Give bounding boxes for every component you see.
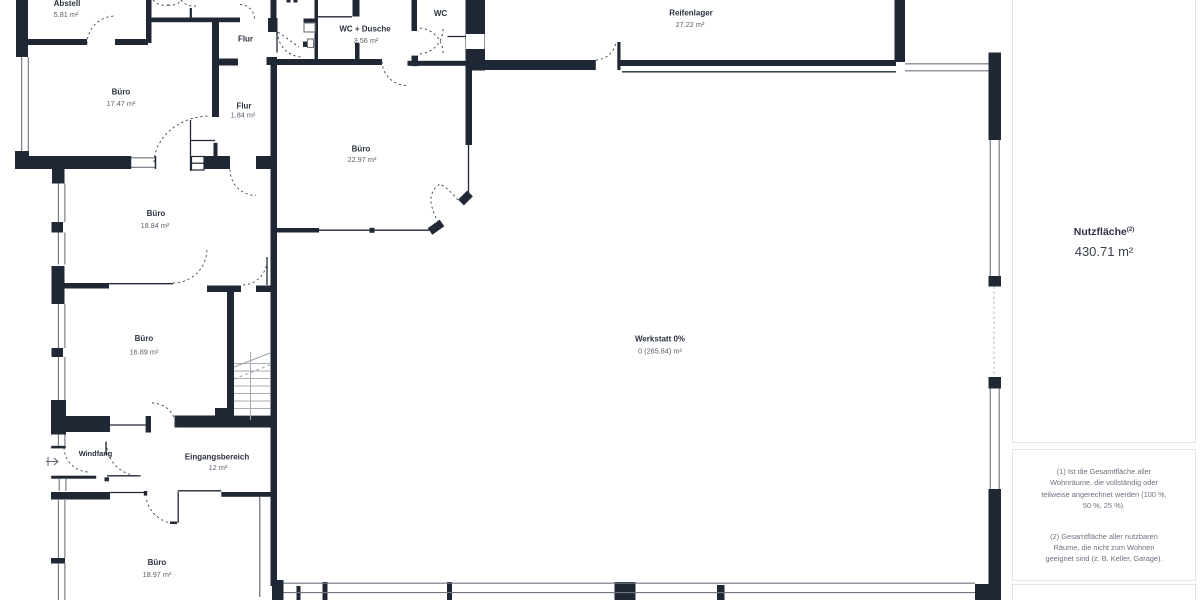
svg-text:WC: WC [434, 9, 448, 18]
svg-text:Werkstatt 0%: Werkstatt 0% [635, 335, 685, 344]
svg-text:Büro: Büro [135, 334, 154, 343]
svg-text:Büro: Büro [147, 209, 166, 218]
svg-text:Büro: Büro [148, 558, 167, 567]
svg-text:Eingangsbereich: Eingangsbereich [185, 453, 250, 462]
svg-text:0 (265.84) m²: 0 (265.84) m² [638, 347, 682, 356]
svg-text:22.97 m²: 22.97 m² [348, 155, 377, 164]
svg-text:16.89 m²: 16.89 m² [130, 348, 159, 357]
svg-text:27.22 m²: 27.22 m² [676, 20, 705, 29]
svg-text:12 m²: 12 m² [209, 463, 228, 472]
svg-text:Abstell: Abstell [54, 0, 81, 8]
svg-text:3.56 m²: 3.56 m² [354, 36, 379, 45]
svg-text:Büro: Büro [352, 145, 371, 154]
svg-text:Windfang: Windfang [79, 449, 113, 458]
svg-text:18.84 m²: 18.84 m² [141, 221, 170, 230]
svg-text:Flur: Flur [236, 102, 251, 111]
svg-text:18.97 m²: 18.97 m² [143, 570, 172, 579]
svg-text:Flur: Flur [238, 35, 253, 44]
svg-text:WC + Dusche: WC + Dusche [339, 25, 391, 34]
svg-text:Reifenlager: Reifenlager [669, 9, 713, 18]
svg-text:Büro: Büro [112, 88, 131, 97]
svg-text:17.47 m²: 17.47 m² [107, 99, 136, 108]
svg-text:1.84 m²: 1.84 m² [231, 111, 256, 120]
svg-text:5.81 m²: 5.81 m² [54, 10, 79, 19]
